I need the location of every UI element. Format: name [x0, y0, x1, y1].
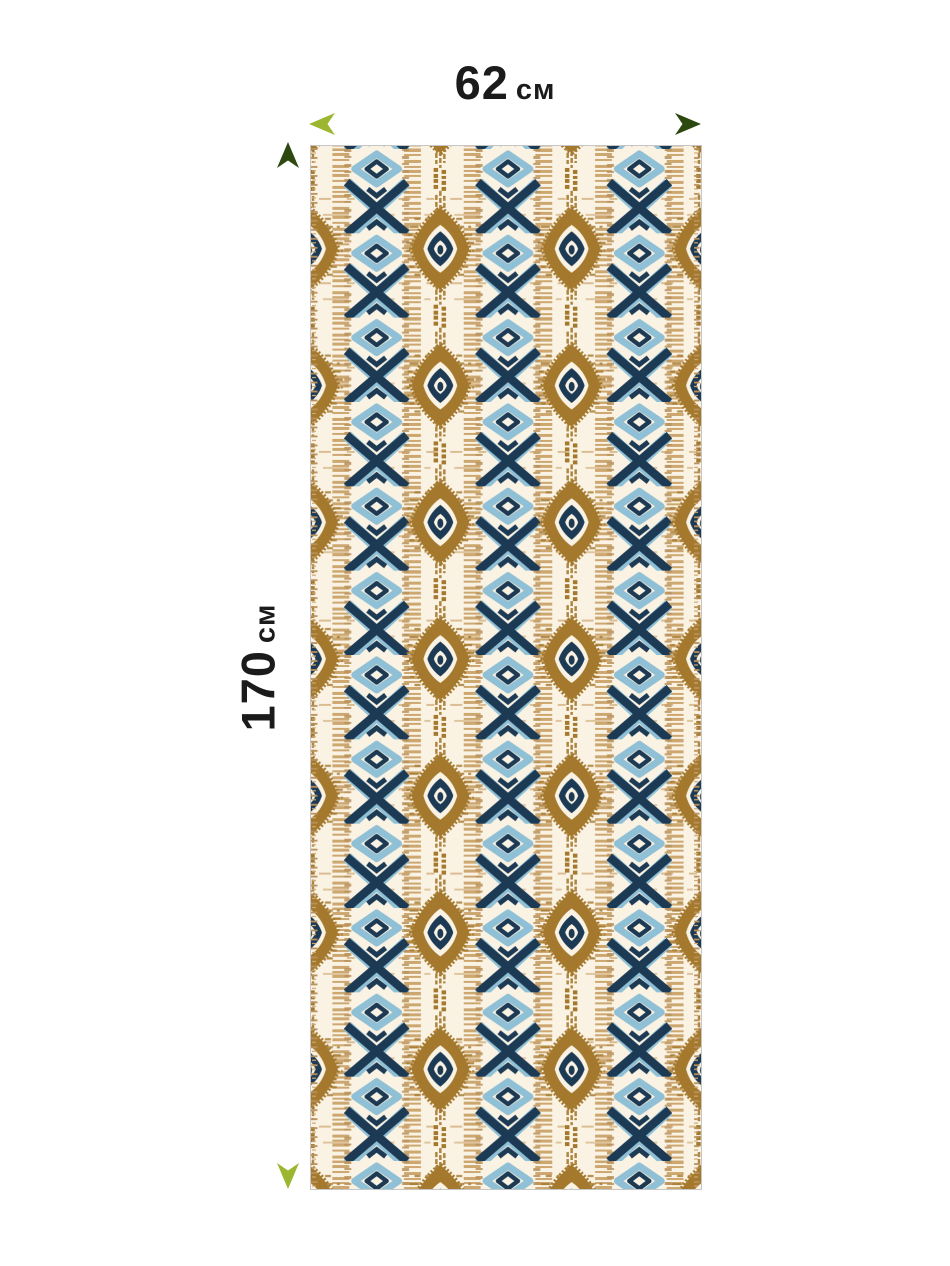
width-arrow-icon	[308, 110, 702, 138]
right-selvedge	[694, 146, 701, 1189]
left-selvedge	[311, 146, 318, 1189]
fabric-swatch	[310, 145, 702, 1190]
medallion-columns	[311, 146, 701, 1189]
product-dimensions-illustration: 62см 170см	[0, 0, 950, 1266]
width-value: 62	[455, 56, 509, 109]
width-dimension-label: 62см	[308, 59, 702, 106]
ikat-pattern	[311, 146, 701, 1189]
width-unit: см	[516, 74, 556, 106]
height-arrow-icon	[274, 141, 302, 1190]
